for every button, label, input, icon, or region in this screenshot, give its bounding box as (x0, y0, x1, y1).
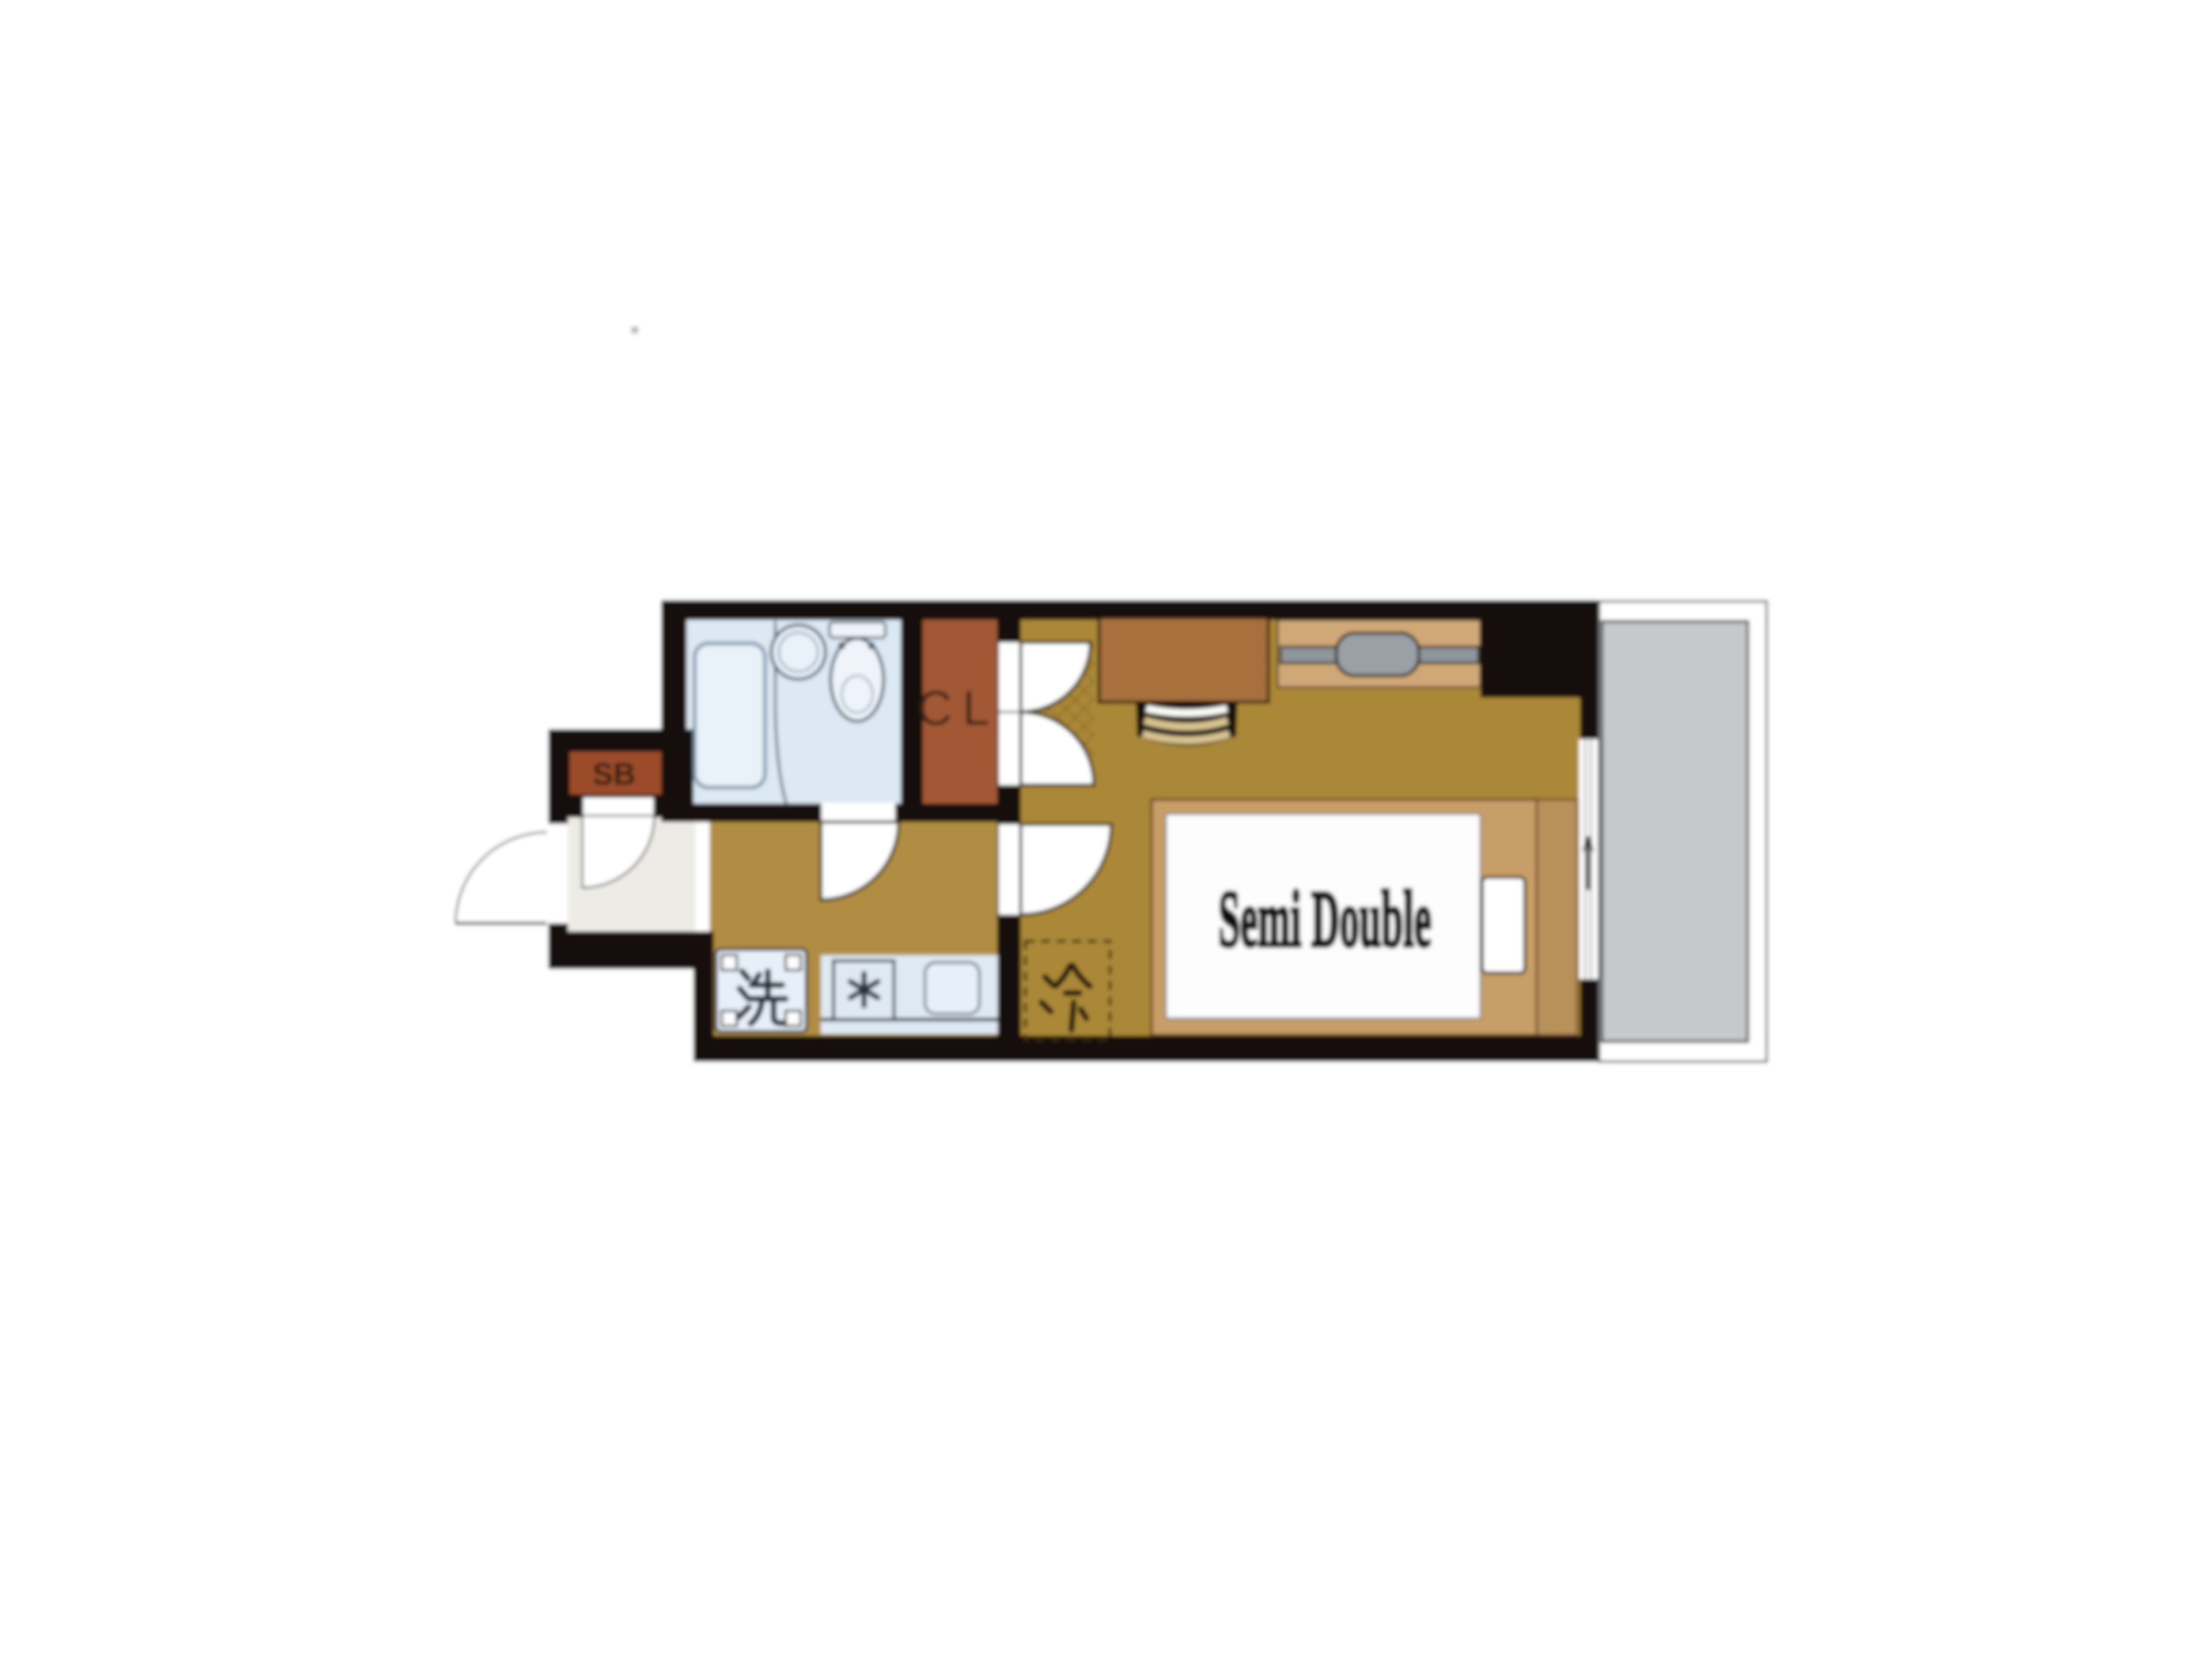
svg-text:SB: SB (592, 757, 635, 791)
svg-text:CL: CL (917, 681, 999, 735)
svg-text:Semi Double: Semi Double (1218, 874, 1431, 964)
